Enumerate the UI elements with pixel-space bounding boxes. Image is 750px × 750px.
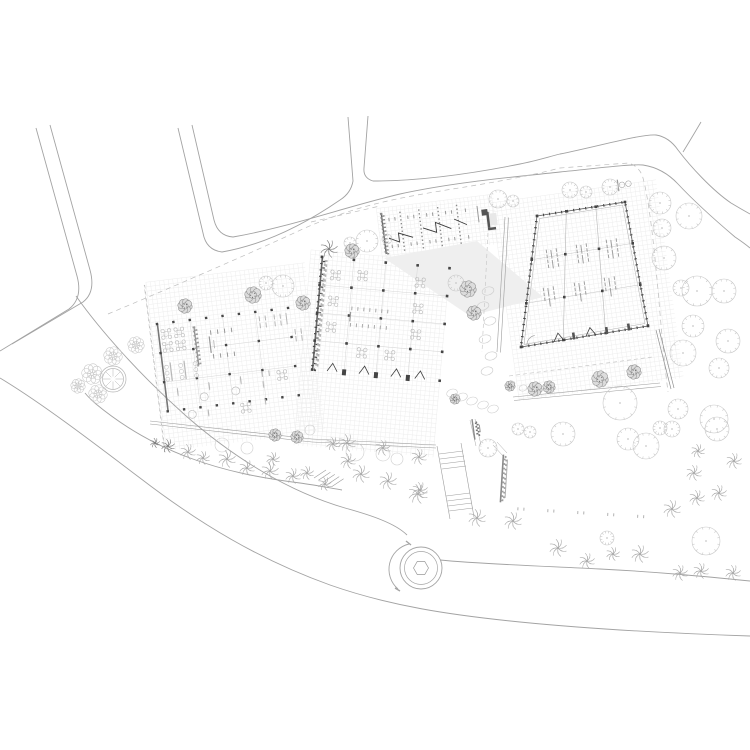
layer-paving-grids xyxy=(146,180,684,458)
site-plan-page xyxy=(0,0,750,750)
layer-pool xyxy=(500,455,648,518)
site-plan-drawing xyxy=(0,0,750,750)
layer-roundabout xyxy=(389,541,442,591)
layer-planter xyxy=(472,419,482,440)
